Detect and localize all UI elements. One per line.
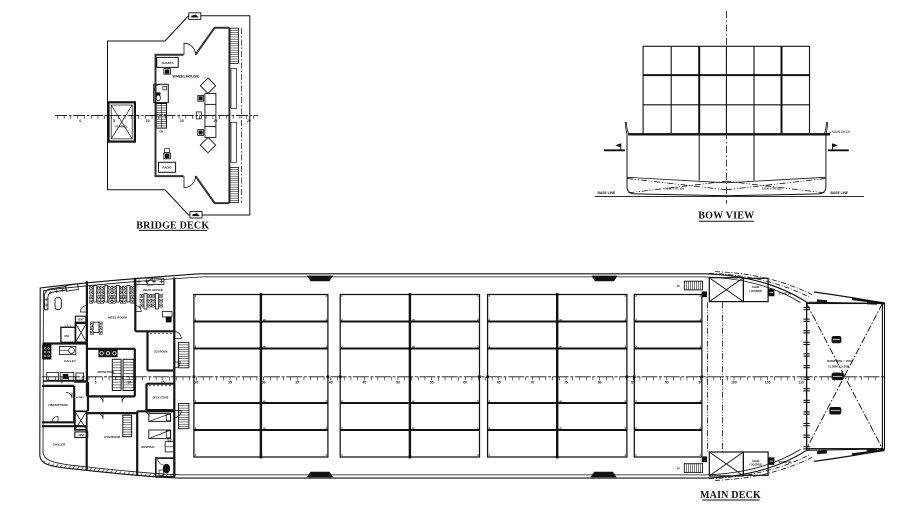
svg-text:5: 5 [95,381,97,385]
svg-text:5: 5 [113,119,115,123]
svg-text:CHAIN: CHAIN [752,286,760,289]
svg-text:(X): (X) [263,320,266,322]
svg-text:MAIN DECK: MAIN DECK [700,490,761,501]
svg-text:75: 75 [564,381,568,385]
svg-text:(X): (X) [412,428,415,430]
svg-text:15: 15 [180,119,184,123]
svg-text:MESS ROOM: MESS ROOM [108,316,127,320]
svg-text:GYM ROOM: GYM ROOM [104,435,121,439]
svg-text:FREEZER ROOM: FREEZER ROOM [48,404,67,407]
svg-text:DECK OFFICE: DECK OFFICE [143,288,163,292]
svg-text:LOCKER(P): LOCKER(P) [749,291,762,293]
svg-text:WHEELHOUSE: WHEELHOUSE [172,74,199,78]
svg-text:BASE LINE: BASE LINE [831,191,849,195]
svg-text:CHILLER: CHILLER [53,442,66,446]
svg-text:35: 35 [295,381,299,385]
svg-text:20: 20 [195,381,199,385]
svg-text:13.80M X 3.00M: 13.80M X 3.00M [828,365,850,369]
svg-text:CHAIN: CHAIN [752,460,760,463]
svg-text:ESC: ESC [64,335,69,338]
svg-text:60: 60 [463,381,467,385]
svg-text:AP: AP [677,468,681,471]
svg-text:40: 40 [329,381,333,385]
svg-text:10: 10 [127,381,131,385]
svg-text:(X): (X) [559,428,562,430]
svg-text:110: 110 [798,381,804,385]
svg-text:DN: DN [159,130,163,134]
svg-text:RAMP SWL = #001: RAMP SWL = #001 [827,359,853,363]
svg-text:STORE (P): STORE (P) [779,293,792,296]
svg-text:65: 65 [497,381,501,385]
svg-text:105: 105 [765,381,771,385]
svg-text:30: 30 [262,381,266,385]
svg-text:20: 20 [213,119,217,123]
svg-text:85: 85 [631,381,635,385]
svg-text:(X): (X) [263,428,266,430]
svg-text:(X): (X) [263,401,266,403]
svg-text:DECK STORE: DECK STORE [153,397,169,400]
svg-text:0.8.M. 0 TR. (D): 0.8.M. 0 TR. (D) [664,187,683,191]
svg-text:(X): (X) [412,320,415,322]
svg-text:10: 10 [146,119,150,123]
svg-text:55: 55 [430,381,434,385]
svg-text:(X): (X) [412,347,415,349]
svg-text:90: 90 [665,381,669,385]
svg-text:0.8.M. 0 TR. (D): 0.8.M. 0 TR. (D) [762,187,781,191]
svg-text:45: 45 [363,381,367,385]
svg-text:95: 95 [699,381,703,385]
svg-text:LOCKER(S): LOCKER(S) [749,465,762,467]
svg-text:70: 70 [531,381,535,385]
svg-text:(X): (X) [263,347,266,349]
svg-text:BASE LINE: BASE LINE [598,191,616,195]
svg-text:CO2 ROOM: CO2 ROOM [154,351,168,354]
svg-text:(X): (X) [412,401,415,403]
svg-text:HOSPITAL: HOSPITAL [141,445,155,449]
svg-text:25: 25 [247,119,251,123]
svg-text:(X): (X) [559,320,562,322]
svg-text:50: 50 [396,381,400,385]
svg-text:CHARTS: CHARTS [161,61,173,65]
svg-text:80: 80 [598,381,602,385]
svg-text:BOW VIEW: BOW VIEW [698,210,754,221]
svg-text:MAIN DECK: MAIN DECK [832,130,851,134]
svg-text:(X): (X) [559,347,562,349]
svg-text:25: 25 [228,381,232,385]
svg-text:0: 0 [79,119,81,123]
svg-text:VENT: VENT [78,435,85,437]
svg-text:RADIO: RADIO [162,166,172,170]
svg-text:FUNNEL: FUNNEL [115,124,128,128]
svg-text:LOBBY: LOBBY [76,397,84,399]
svg-text:AP: AP [677,285,681,288]
svg-text:(X): (X) [559,401,562,403]
svg-text:100: 100 [731,381,737,385]
svg-text:VENT: VENT [78,320,85,322]
svg-text:STORE (S): STORE (S) [779,461,792,464]
svg-text:GALLEY: GALLEY [64,359,76,363]
